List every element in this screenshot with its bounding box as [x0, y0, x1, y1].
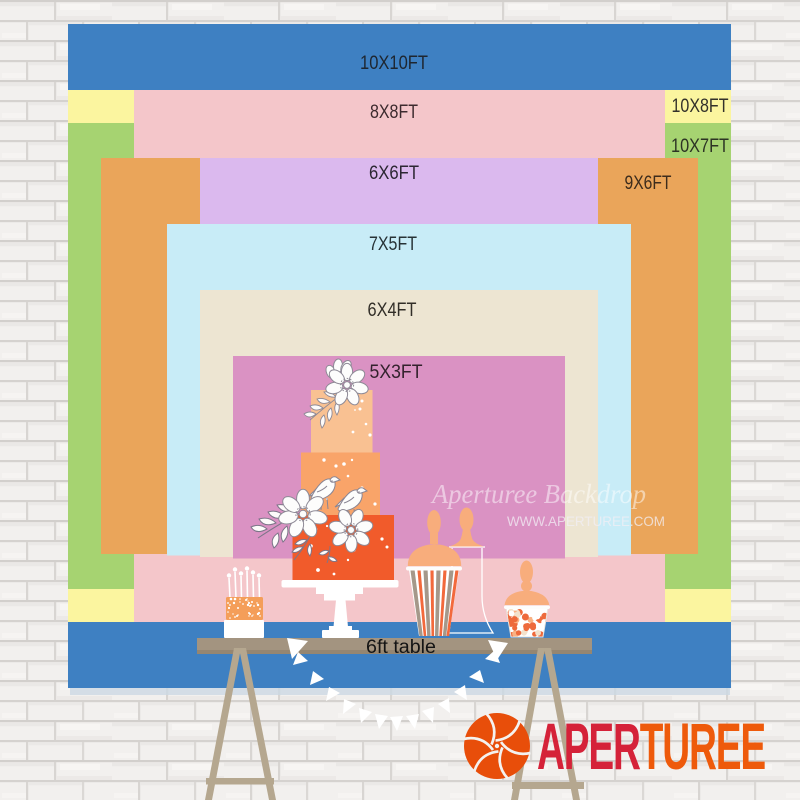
svg-text:10X7FT: 10X7FT [671, 135, 729, 157]
svg-text:APERTUREE: APERTUREE [537, 709, 765, 783]
svg-text:7X5FT: 7X5FT [369, 233, 417, 255]
svg-text:WWW.APERTUREE.COM: WWW.APERTUREE.COM [507, 513, 665, 529]
svg-text:5X3FT: 5X3FT [370, 361, 423, 383]
svg-text:10X10FT: 10X10FT [360, 52, 428, 74]
svg-text:6X6FT: 6X6FT [369, 162, 419, 184]
svg-text:10X8FT: 10X8FT [672, 95, 729, 117]
svg-text:6X4FT: 6X4FT [368, 299, 417, 321]
svg-text:Aperturee Backdrop: Aperturee Backdrop [430, 479, 646, 509]
svg-text:8X8FT: 8X8FT [370, 101, 418, 123]
svg-text:9X6FT: 9X6FT [625, 172, 672, 194]
svg-text:6ft table: 6ft table [366, 637, 436, 658]
